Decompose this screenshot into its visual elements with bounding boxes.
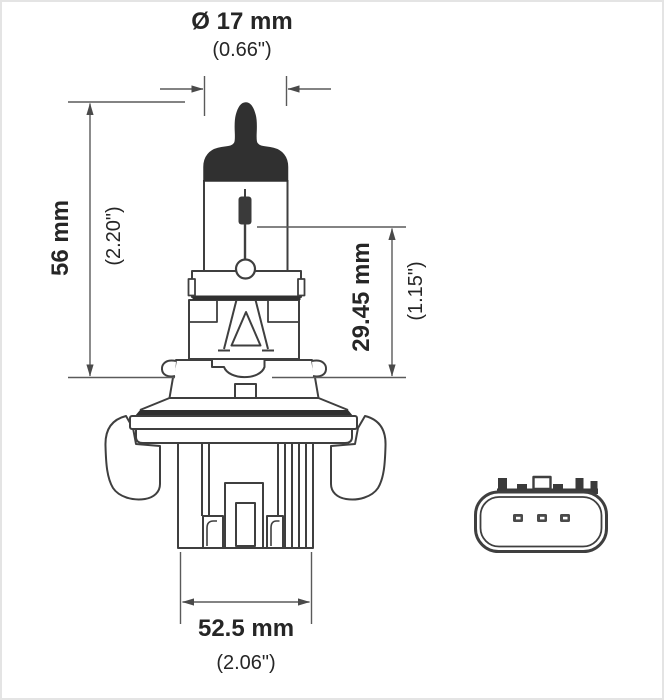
connector-center-key bbox=[534, 477, 551, 489]
dim-diameter-mm-label: Ø 17 mm bbox=[191, 10, 292, 34]
left-ear bbox=[162, 361, 176, 377]
flange-box bbox=[162, 360, 326, 398]
filament bbox=[236, 189, 255, 279]
dim-width-in-label: (2.06") bbox=[216, 653, 275, 673]
bulb-diagram bbox=[0, 0, 664, 700]
pin-2 bbox=[537, 514, 547, 522]
dim-filament-in-label: (1.15") bbox=[406, 261, 426, 320]
black-tip bbox=[204, 103, 288, 181]
dim-length-mm-label: 56 mm bbox=[49, 200, 73, 276]
dim-length-in-label: (2.20") bbox=[104, 206, 124, 265]
pin-3 bbox=[560, 514, 570, 522]
dim-width-mm-label: 52.5 mm bbox=[198, 617, 294, 641]
pin-1 bbox=[513, 514, 523, 522]
connector-pins bbox=[513, 514, 570, 522]
pinch-ball bbox=[236, 260, 255, 279]
dim-base-width bbox=[181, 552, 312, 624]
connector-view bbox=[476, 477, 607, 552]
base-flange bbox=[130, 398, 357, 443]
bulb-base-body bbox=[178, 443, 313, 548]
dim-filament-mm-label: 29.45 mm bbox=[350, 242, 374, 351]
right-ear bbox=[312, 361, 326, 377]
technical-drawing-page: Ø 17 mm (0.66") 56 mm (2.20") 29.45 mm (… bbox=[0, 0, 664, 700]
bulb-drawing bbox=[105, 103, 385, 548]
dim-diameter-in-label: (0.66") bbox=[212, 40, 271, 60]
dim-overall-length bbox=[68, 102, 185, 378]
